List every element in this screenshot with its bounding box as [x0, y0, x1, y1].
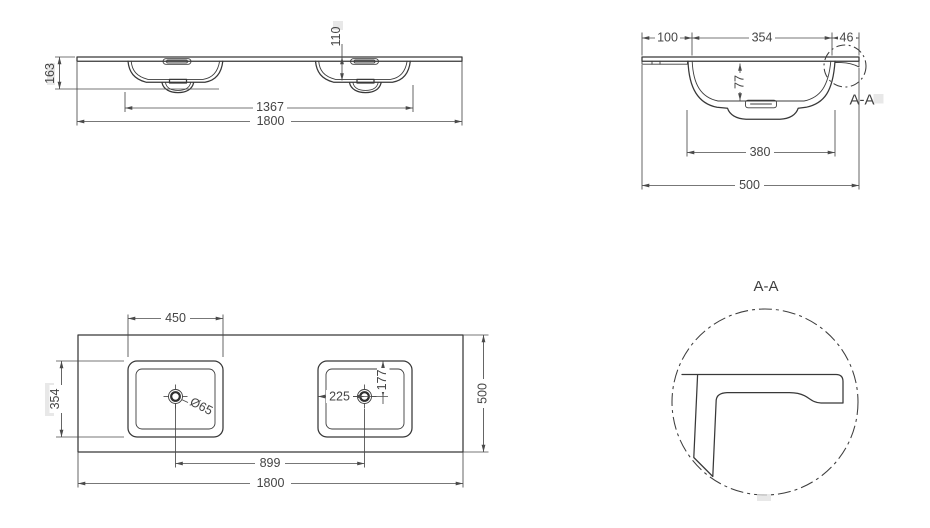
drain-cap-outer	[162, 83, 194, 93]
front-dim-bowl-span-label: 1367	[256, 100, 284, 114]
plan-dim-overall-depth: 500	[463, 335, 490, 452]
detail-boundary-circle	[672, 309, 858, 495]
section-dim-rear-ledge-label: 100	[657, 31, 678, 45]
highlight-smudge	[874, 94, 884, 104]
bowl-section-inner	[692, 61, 831, 101]
highlight-smudge	[757, 494, 771, 501]
section-dim-bowl-top-label: 354	[752, 31, 773, 45]
countertop-slab-section	[642, 57, 859, 61]
section-dim-bowl-bottom: 380	[687, 110, 835, 159]
front-dim-bowl-depth: 110	[329, 21, 343, 81]
plan-dim-overall-width-label: 1800	[257, 476, 285, 490]
plan-dim-drain-inset-label: 225	[329, 389, 350, 403]
front-dim-overall-width-label: 1800	[257, 114, 285, 128]
section-dim-front-lip-label: 46	[840, 31, 854, 45]
plan-dim-drain-spacing-label: 899	[260, 456, 281, 470]
front-lip-section	[835, 61, 859, 67]
drain-body	[170, 79, 187, 83]
bowl-section-outer	[688, 61, 835, 119]
section-dim-bowl-depth-label: 77	[733, 75, 747, 89]
plan-dim-drain-offset-label: 177	[375, 370, 389, 391]
section-dim-bowl-depth: 77	[733, 64, 747, 101]
section-top-dims: 100 354 46	[642, 31, 859, 56]
drawing-canvas: 163 110 1367 1800	[0, 0, 930, 528]
section-dim-overall-depth-label: 500	[739, 178, 760, 192]
plan-dim-overall-depth-label: 500	[476, 383, 490, 404]
plan-dim-bowl-length-label: 354	[48, 389, 62, 410]
bowl-front-right	[316, 59, 411, 93]
front-dim-bowl-depth-label: 110	[329, 26, 343, 46]
plan-dim-bowl-width: 450	[128, 311, 223, 357]
plan-dim-drain-diameter-label: Ø65	[188, 395, 215, 418]
section-dim-overall-depth: 500	[642, 65, 859, 192]
detail-view: A-A	[672, 278, 858, 501]
front-dim-height-label: 163	[43, 63, 57, 84]
front-elevation-view: 163 110 1367 1800	[43, 21, 462, 128]
section-dim-bowl-bottom-label: 380	[750, 145, 771, 159]
bowl-front-left	[128, 59, 223, 93]
rim-profile	[682, 375, 843, 477]
plan-dim-drain-diameter: Ø65	[182, 395, 216, 418]
section-cut-label: A-A	[849, 92, 874, 109]
plan-view: Ø65 450 354 177	[45, 311, 490, 490]
plan-dim-drain-offset: 177	[375, 361, 389, 404]
countertop-slab-front	[77, 57, 462, 61]
technical-drawing: 163 110 1367 1800	[0, 0, 930, 528]
section-view: A-A 100 354 46 77	[642, 31, 884, 192]
plan-dim-bowl-length: 354	[45, 361, 124, 437]
plan-dim-bowl-width-label: 450	[165, 311, 186, 325]
detail-view-title: A-A	[753, 278, 778, 295]
